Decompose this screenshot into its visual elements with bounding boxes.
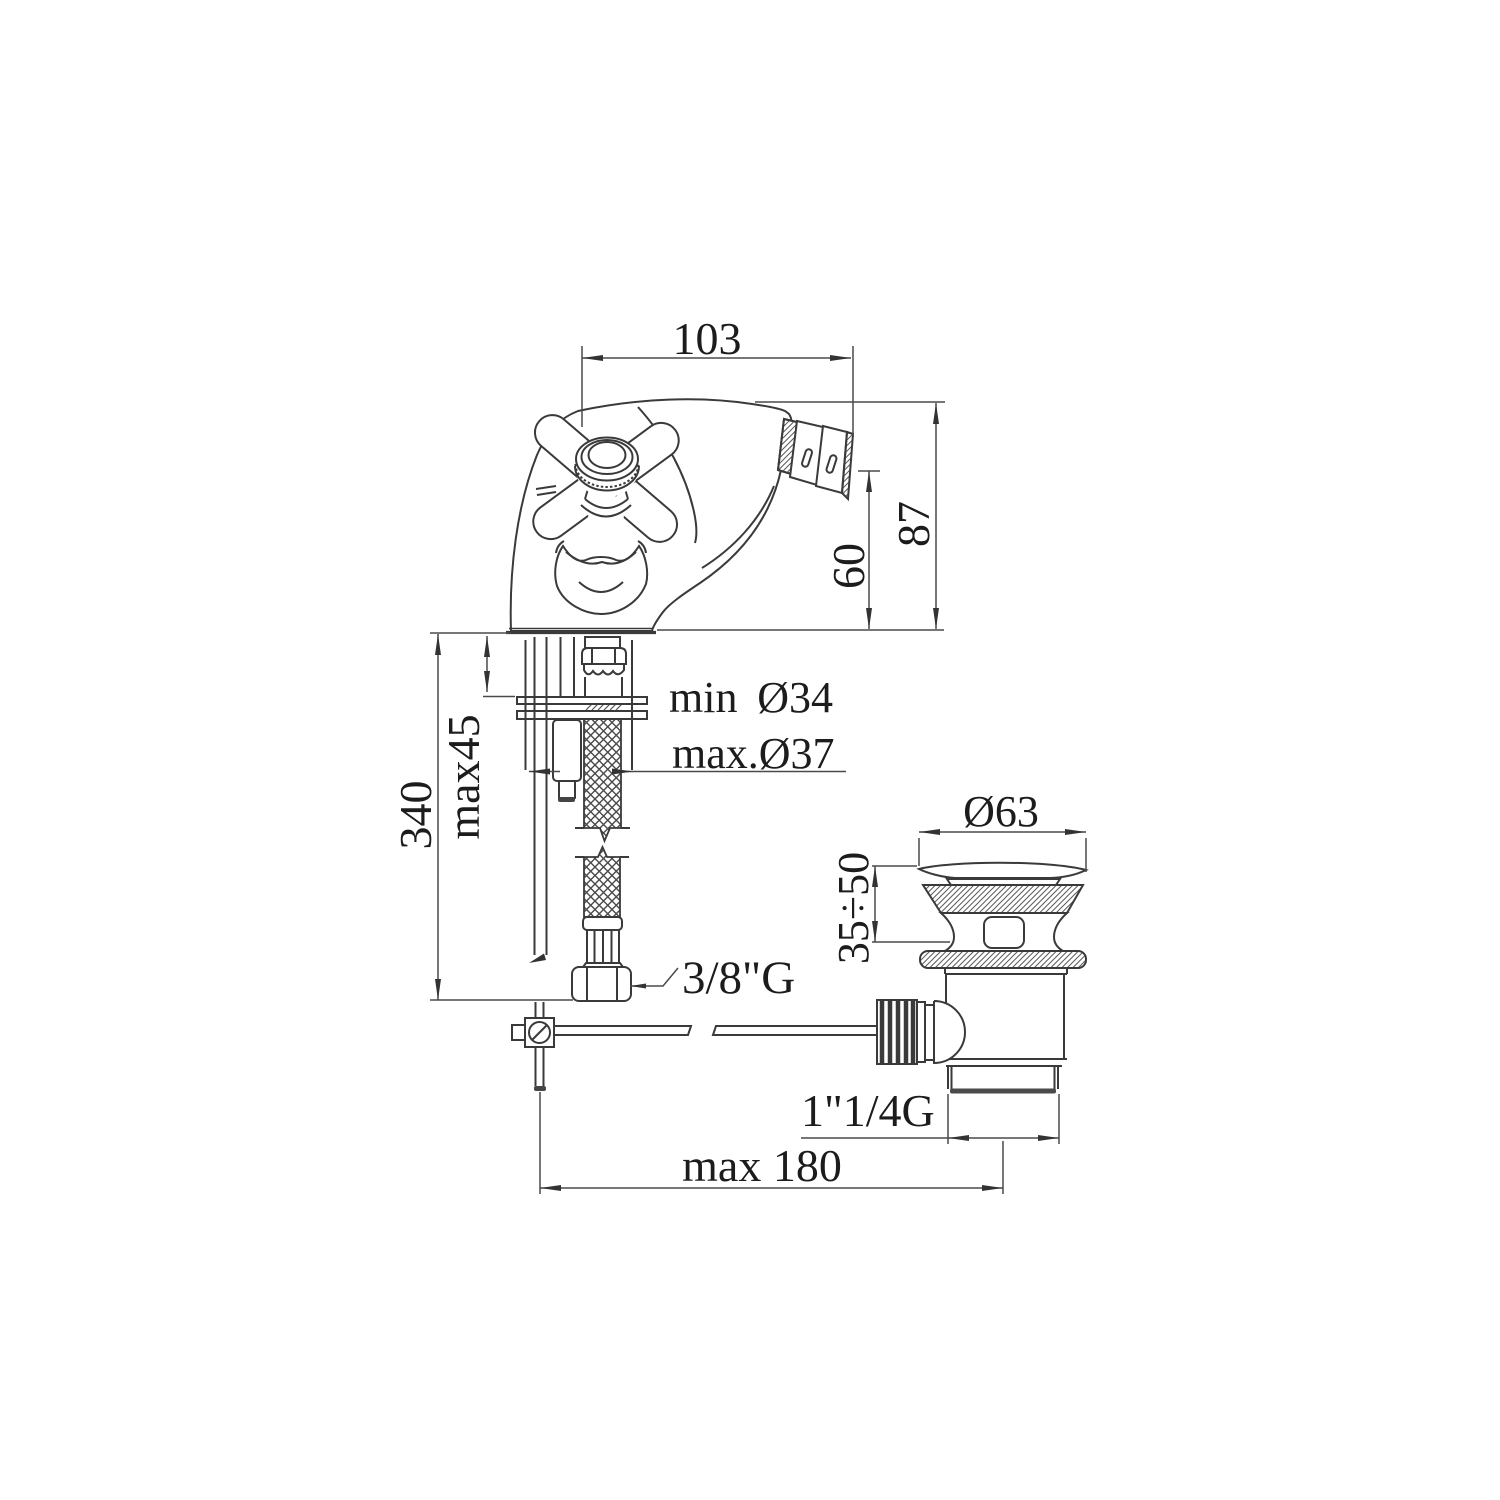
svg-text:340: 340 — [390, 781, 441, 850]
svg-text:3/8"G: 3/8"G — [682, 952, 795, 1004]
svg-text:60: 60 — [823, 543, 874, 589]
svg-text:1"1/4G: 1"1/4G — [801, 1085, 935, 1136]
svg-text:Ø63: Ø63 — [963, 787, 1039, 836]
svg-text:max45: max45 — [438, 714, 489, 839]
svg-text:87: 87 — [888, 501, 939, 547]
svg-text:35÷50: 35÷50 — [829, 852, 878, 964]
svg-text:103: 103 — [673, 313, 742, 364]
svg-text:max 180: max 180 — [682, 1140, 842, 1191]
svg-text:min Ø34: min Ø34 — [669, 673, 833, 722]
svg-text:max.Ø37: max.Ø37 — [672, 729, 835, 778]
